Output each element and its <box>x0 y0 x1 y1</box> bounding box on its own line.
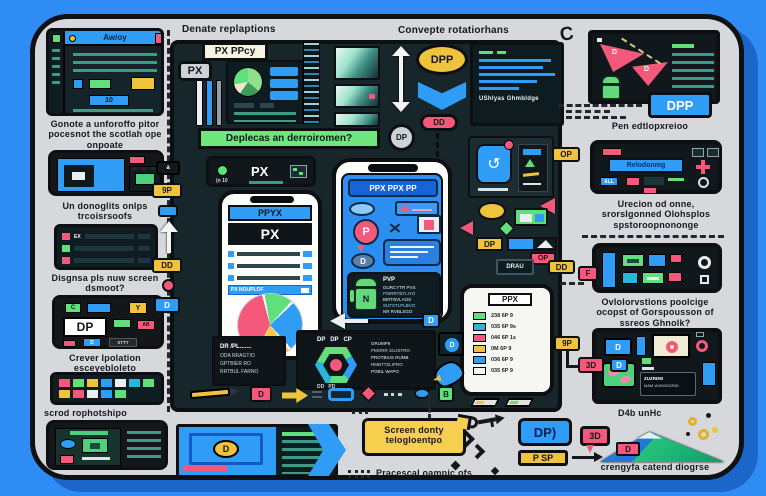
list-item: 046 6P 1s <box>473 332 549 343</box>
video-play-oval: D <box>213 440 239 458</box>
dp-device: C Y DP AB D STTT <box>52 295 164 349</box>
app-panel: ↺ <box>468 136 554 198</box>
phone-rows: EX <box>54 224 158 270</box>
edge-badge: OP <box>552 147 580 162</box>
right-phone-2 <box>592 243 722 293</box>
header-left: Denate replaptions <box>182 24 332 36</box>
chat-screen: PPX PPX PP P D N PVP GURCYTR PVS PSIRRTB… <box>341 173 443 321</box>
hexagon-icon <box>315 347 357 383</box>
dpp-ellipse: DPP <box>416 44 468 75</box>
edge-badge: 3D <box>578 357 604 373</box>
equals-icon <box>312 391 322 398</box>
progress-bar <box>507 237 557 251</box>
dashboard-card <box>226 60 304 124</box>
d-bubble: D <box>351 253 375 269</box>
up-arrow-icon <box>160 221 178 255</box>
android-icon <box>355 278 377 287</box>
ring-icon <box>698 256 711 269</box>
reload-bar: Relodonmg <box>608 158 684 173</box>
mini-card <box>417 215 441 234</box>
vertical-arrow-icon <box>392 46 410 112</box>
arrow-left-icon <box>330 313 370 329</box>
dp-button: DP) <box>518 418 572 446</box>
speech-bubble: Screen donty telogloentpo <box>362 418 466 456</box>
chat-bubble <box>383 239 441 266</box>
rect-outline-icon <box>328 388 354 401</box>
pink-triangle-icon <box>632 62 668 86</box>
b-chip: B <box>438 386 454 402</box>
phone-chat: PPX PPX PP P D N PVP GURCYTR PVS PSIRRTB… <box>332 158 452 324</box>
code-lines: PVP GURCYTR PVS PSIRRTBTLIYO BIRTBVLAOS … <box>383 277 441 314</box>
dp-label: DP <box>63 317 107 337</box>
phone-list: PPX 238 6P 9 035 6P 9s 046 6P 1s 0M 6P 9… <box>460 284 554 396</box>
caption: Pen edtlopxreioo <box>600 121 700 131</box>
code-block: UShlyas Ghmbldge <box>470 42 564 126</box>
list-item: 238 6P 9 <box>473 310 549 321</box>
browser-titlebar: Aw/oy <box>65 31 164 46</box>
green-dot-icon <box>217 165 228 176</box>
caption: Gonote a unforoffo pitor pocesnot the sc… <box>38 119 172 150</box>
d-tag: D <box>422 313 440 328</box>
edge-dot <box>162 279 175 292</box>
icon-column <box>518 144 548 192</box>
phone-list-header: PPX <box>488 293 532 306</box>
notch <box>368 164 418 172</box>
px-badge: PX <box>178 61 212 81</box>
phone-px-banner: PX <box>228 223 312 245</box>
caption: Crever Ipolation esceyebloleto <box>38 353 172 374</box>
dashed-connector <box>566 110 610 113</box>
list-item: 035 6P 9s <box>473 321 549 332</box>
ring-icon <box>698 177 709 188</box>
header-right: Convepte rotatiorhans <box>398 25 568 37</box>
right-phone-1: Relodonmg ALL <box>590 140 722 194</box>
caption: Ovlolorvstions poolcige ocopst of Gorspo… <box>586 297 724 328</box>
caption: Urecion od onne, srorslgonned Olohsplos … <box>588 199 724 230</box>
edge-badge: 9P <box>554 336 580 351</box>
dashed-divider <box>582 235 724 238</box>
list-item: 036 6P 9 <box>473 354 549 365</box>
edge-badge: 9P <box>152 183 182 198</box>
dp-circle-badge: DP <box>388 124 415 151</box>
toolbar-note: (n 10 <box>216 178 228 184</box>
barcode-icon <box>303 42 320 124</box>
video-screen: D <box>179 427 276 475</box>
image-card-icon <box>514 208 548 226</box>
notch <box>250 196 294 203</box>
toolbar-px: PX <box>251 164 268 179</box>
dp-tag: DP <box>476 237 503 251</box>
phone-landscape-1 <box>48 150 164 196</box>
scribble-card <box>395 201 439 216</box>
caption: scrod rophotshipo <box>38 408 168 418</box>
oval-avatar-icon <box>349 202 375 216</box>
edge-badge: DD <box>152 258 182 273</box>
edge-badge: D <box>610 358 628 372</box>
monitor-icon <box>334 84 380 108</box>
edge-badge: F <box>578 266 598 281</box>
android-code-panel: N PVP GURCYTR PVS PSIRRTBTLIYO BIRTBVLAO… <box>347 272 441 318</box>
plus-icon <box>696 160 710 174</box>
threed-bubble: 3D <box>580 426 610 446</box>
px-toolbar: (n 10 PX <box>206 156 316 187</box>
chat-header: PPX PPX PP <box>348 179 438 197</box>
edge-badge: D <box>154 297 180 313</box>
list-item: 035 6P 9 <box>473 365 549 376</box>
phone-px-list: PX NOUPLOF <box>228 249 312 295</box>
caption: Disgnsa pls nuw screen dsmoot? <box>38 273 172 294</box>
spiral-app-icon: ↺ <box>476 144 512 184</box>
phone-landscape-3 <box>46 420 168 470</box>
browser-title: Aw/oy <box>103 33 126 42</box>
card-icon <box>470 398 500 407</box>
pie-chart-icon <box>233 67 263 97</box>
dashed-connector <box>428 392 431 420</box>
oval-icon <box>478 202 506 220</box>
psp-button: P SP <box>518 450 568 466</box>
card-icon <box>504 398 534 407</box>
caption: crengyfa catend diogrse <box>582 462 728 472</box>
mountain-chip: D <box>616 442 640 456</box>
units-label: D4b unHc <box>618 408 692 418</box>
dd-pill: DD <box>420 114 458 131</box>
drau-box: DRAU <box>496 259 534 275</box>
caption: Un donoglits onlps trcoisrsoofs <box>38 201 172 222</box>
browser-window: Aw/oy 10 <box>46 28 164 116</box>
vertical-bars <box>196 80 222 126</box>
edge-chip <box>158 205 178 217</box>
monitor-icon <box>334 112 380 127</box>
d-icon-tile: D <box>438 332 464 356</box>
question-banner: Deplecas an derroiromen? <box>198 128 380 149</box>
dotted-connector <box>436 133 439 157</box>
px-ppcy-label: PX PPcy <box>202 42 268 61</box>
p-speech-bubble: P <box>353 219 379 245</box>
dpp-button: DPP <box>648 92 712 118</box>
code-caption: UShlyas Ghmbldge <box>479 96 555 102</box>
edge-badge: DD <box>548 260 575 274</box>
phone-px-header: PPYX <box>228 205 312 221</box>
hexagon-panel: DP DP CP DD PD GRUMP9 PMORR SUJSTRO PROT… <box>296 330 436 390</box>
android-icon <box>602 76 620 84</box>
tablet-text-box: ZUZRDM MAM WJMXDDRID <box>640 372 696 396</box>
pink-arrow-left-icon <box>460 221 473 235</box>
edge-badge: a <box>156 161 180 175</box>
window-icon <box>290 165 307 178</box>
phone-grid <box>50 372 164 405</box>
monitor-icon <box>334 46 380 80</box>
color-list: 238 6P 9 035 6P 9s 046 6P 1s 0M 6P 9 036… <box>473 310 549 376</box>
caption: Pracescal oampic ofs <box>376 468 496 478</box>
list-item: 0M 6P 9 <box>473 343 549 354</box>
speech-bubble-icon: D <box>250 386 272 402</box>
code-panel: DR /PL....... ODA RRAGTIO GPTBIER RO RRT… <box>212 336 286 386</box>
